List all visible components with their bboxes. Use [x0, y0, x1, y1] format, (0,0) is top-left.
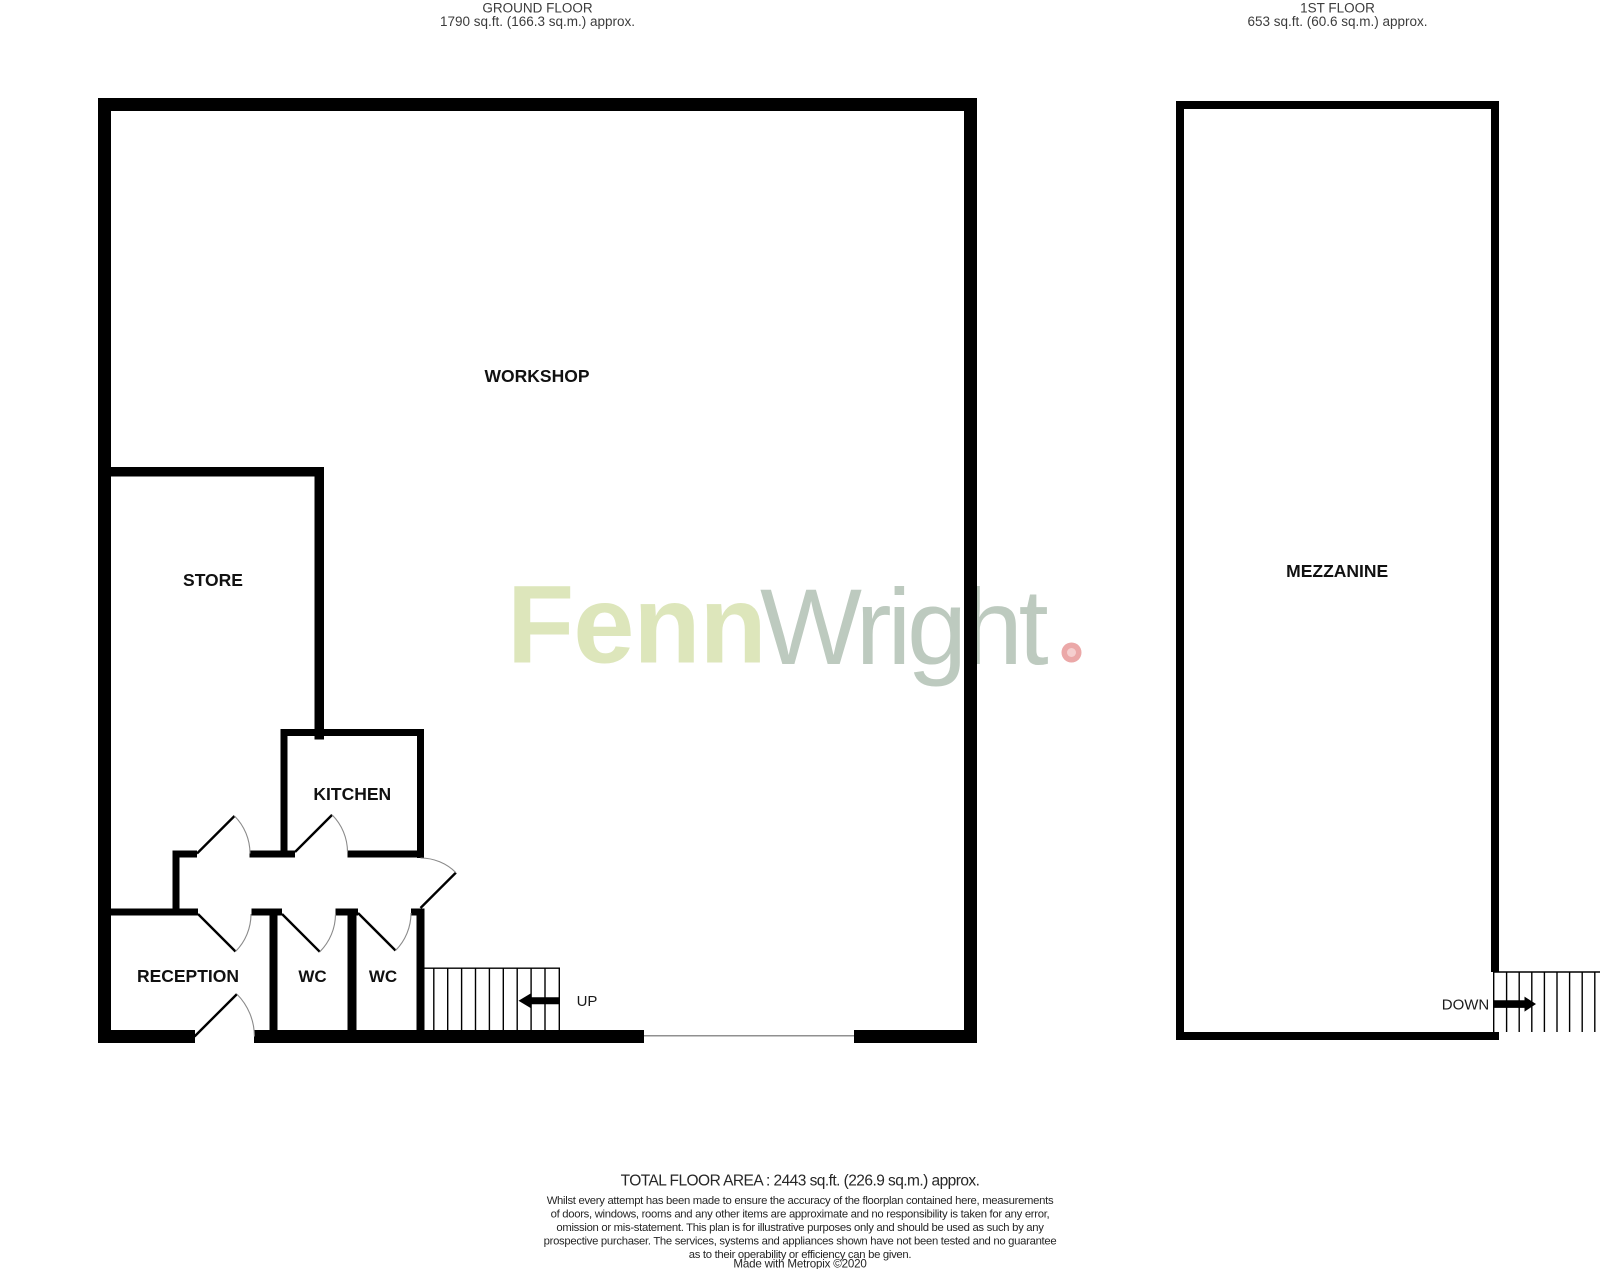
svg-text:STORE: STORE: [183, 570, 243, 590]
svg-text:omission or mis-statement. Thi: omission or mis-statement. This plan is …: [556, 1222, 1044, 1234]
svg-text:prospective purchaser. The ser: prospective purchaser. The services, sys…: [544, 1236, 1057, 1248]
svg-text:RECEPTION: RECEPTION: [137, 966, 239, 986]
svg-text:653 sq.ft. (60.6 sq.m.) approx: 653 sq.ft. (60.6 sq.m.) approx.: [1247, 14, 1427, 29]
svg-text:Whilst every attempt has been: Whilst every attempt has been made to en…: [547, 1195, 1054, 1207]
svg-text:WC: WC: [369, 967, 397, 986]
svg-text:of doors, windows, rooms and a: of doors, windows, rooms and any other i…: [551, 1209, 1050, 1221]
svg-text:Wright: Wright: [760, 566, 1049, 687]
svg-text:DOWN: DOWN: [1442, 997, 1490, 1014]
svg-text:WC: WC: [298, 967, 326, 986]
svg-text:TOTAL FLOOR AREA : 2443 sq.ft.: TOTAL FLOOR AREA : 2443 sq.ft. (226.9 sq…: [621, 1173, 980, 1190]
svg-text:MEZZANINE: MEZZANINE: [1286, 561, 1388, 581]
svg-text:1790 sq.ft. (166.3 sq.m.) appr: 1790 sq.ft. (166.3 sq.m.) approx.: [440, 14, 635, 29]
svg-text:Fenn: Fenn: [507, 564, 766, 687]
svg-text:Made with Metropix ©2020: Made with Metropix ©2020: [733, 1258, 866, 1269]
svg-text:UP: UP: [577, 993, 598, 1010]
svg-text:KITCHEN: KITCHEN: [313, 784, 391, 804]
svg-text:WORKSHOP: WORKSHOP: [485, 366, 590, 386]
